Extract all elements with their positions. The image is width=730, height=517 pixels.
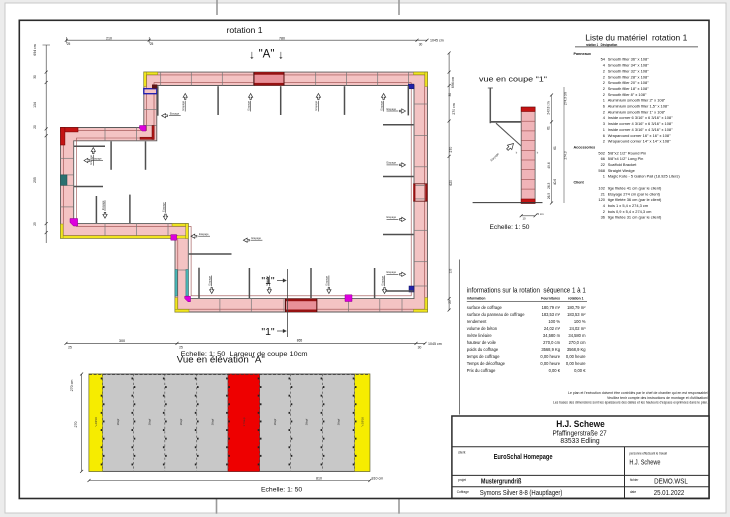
svg-text:date: date <box>630 490 636 494</box>
svg-text:DEMO.WSL: DEMO.WSL <box>654 478 688 485</box>
svg-text:Smooth filler 36" x 108": Smooth filler 36" x 108" <box>608 57 649 62</box>
svg-text:Smooth filler 8" x 108": Smooth filler 8" x 108" <box>608 92 647 97</box>
svg-text:Client: Client <box>574 181 585 185</box>
svg-text:270,0 cm: 270,0 cm <box>543 340 560 345</box>
svg-text:270,0 cm: 270,0 cm <box>569 340 586 345</box>
svg-text:temps de coffrage: temps de coffrage <box>467 354 500 359</box>
svg-text:Etayage: Etayage <box>101 200 105 210</box>
svg-text:1045 cm: 1045 cm <box>430 39 444 43</box>
svg-text:25: 25 <box>179 346 183 350</box>
svg-text:Etayage: Etayage <box>387 270 397 274</box>
svg-text:694 cm: 694 cm <box>451 77 455 88</box>
svg-text:810: 810 <box>316 476 322 480</box>
svg-text:270: 270 <box>74 422 78 428</box>
svg-text:informations sur la rotation: informations sur la rotation séquence 1 … <box>467 286 586 295</box>
svg-text:volume de béton: volume de béton <box>467 326 498 331</box>
svg-text:300: 300 <box>119 339 125 343</box>
svg-text:1: 1 <box>603 174 605 179</box>
svg-text:Echelle: 1: 50: Echelle: 1: 50 <box>490 224 530 231</box>
svg-text:rotation 1: rotation 1 <box>227 25 263 35</box>
svg-text:Etayage: Etayage <box>387 107 397 111</box>
svg-text:vue en coupe "1": vue en coupe "1" <box>479 75 547 84</box>
svg-text:25: 25 <box>67 42 71 46</box>
svg-text:Echelle: 1: 50: Echelle: 1: 50 <box>261 487 302 494</box>
svg-text:5/8"x2 1/2" Round Pin: 5/8"x2 1/2" Round Pin <box>608 150 646 155</box>
svg-text:36spf: 36spf <box>305 418 309 425</box>
svg-text:fichier: fichier <box>630 478 639 482</box>
svg-text:Etayage: Etayage <box>170 112 180 116</box>
svg-text:1: 1 <box>603 98 605 103</box>
svg-text:Scaffold Bracket: Scaffold Bracket <box>608 162 638 167</box>
svg-text:"1": "1" <box>261 275 275 287</box>
svg-text:Aluminium smooth filler 1,5" x: Aluminium smooth filler 1,5" x 108" <box>608 104 669 109</box>
svg-text:36spf: 36spf <box>211 418 215 425</box>
svg-text:20: 20 <box>33 125 37 129</box>
svg-text:26.3: 26.3 <box>547 182 551 188</box>
svg-text:1 "coup: 1 "coup <box>242 417 246 427</box>
svg-text:25: 25 <box>68 346 72 350</box>
svg-text:Temps de décoffrage: Temps de décoffrage <box>467 361 506 366</box>
svg-text:2: 2 <box>603 139 605 144</box>
svg-text:183,53 m²: 183,53 m² <box>542 312 561 317</box>
svg-text:0,00 heure: 0,00 heure <box>540 354 560 359</box>
svg-text:Etayage 274 cm (par le client): Etayage 274 cm (par le client) <box>608 191 661 196</box>
svg-text:hauteur de voile: hauteur de voile <box>467 340 497 345</box>
svg-text:bois 0,9 x 5,4 x 274,3 cm: bois 0,9 x 5,4 x 274,3 cm <box>608 209 652 214</box>
svg-text:270: 270 <box>449 147 453 153</box>
svg-text:rendement: rendement <box>467 319 487 324</box>
svg-text:26.5: 26.5 <box>547 193 551 199</box>
svg-text:125: 125 <box>449 268 453 273</box>
svg-text:Fournitures: Fournitures <box>541 297 560 301</box>
svg-text:Etayage: Etayage <box>92 156 102 160</box>
svg-text:2: 2 <box>603 92 605 97</box>
svg-text:personne effectuant le travail: personne effectuant le travail <box>629 452 667 456</box>
svg-text:Prix du coffrage: Prix du coffrage <box>467 368 496 373</box>
svg-text:274.3: 274.3 <box>564 151 568 159</box>
svg-text:30: 30 <box>33 75 37 79</box>
svg-text:183,53 m²: 183,53 m² <box>567 312 586 317</box>
svg-text:tige filetée 31 cm (par le cli: tige filetée 31 cm (par le client) <box>608 215 662 220</box>
svg-text:Wraparound corner 14" x 14" x: Wraparound corner 14" x 14" x 108" <box>608 139 671 144</box>
svg-text:2: 2 <box>603 209 605 214</box>
svg-text:Symons Silver 8-8 (Hauptlager): Symons Silver 8-8 (Hauptlager) <box>480 490 563 497</box>
svg-text:502: 502 <box>598 150 605 155</box>
svg-text:36spf: 36spf <box>179 418 183 425</box>
svg-text:Smooth filler 20" x 108": Smooth filler 20" x 108" <box>608 80 649 85</box>
svg-text:22: 22 <box>601 162 605 167</box>
svg-text:0,00 heure: 0,00 heure <box>540 361 560 366</box>
svg-text:255: 255 <box>33 177 37 183</box>
svg-text:120: 120 <box>598 197 605 202</box>
svg-text:40.6: 40.6 <box>553 179 557 185</box>
svg-text:"1": "1" <box>261 326 275 338</box>
svg-text:30: 30 <box>419 42 423 46</box>
svg-text:0,00 heure: 0,00 heure <box>566 354 586 359</box>
svg-text:100 %: 100 % <box>548 319 560 324</box>
svg-text:25 cm: 25 cm <box>536 212 544 216</box>
svg-text:83533 Edling: 83533 Edling <box>560 436 599 445</box>
svg-text:102: 102 <box>598 185 605 190</box>
svg-text:Désignation: Désignation <box>601 43 618 47</box>
svg-text:tige filetée 41 cm (par le cli: tige filetée 41 cm (par le client) <box>608 185 662 190</box>
svg-text:1: 1 <box>603 127 605 132</box>
svg-text:Smooth filler 18" x 108": Smooth filler 18" x 108" <box>608 86 649 91</box>
svg-text:surface de coffrage: surface de coffrage <box>467 305 503 310</box>
svg-text:Etayage: Etayage <box>161 202 165 212</box>
svg-text:Les bases des dimensions sont: Les bases des dimensions sont les épaiss… <box>553 400 708 405</box>
svg-text:243.8 cm: 243.8 cm <box>547 101 551 114</box>
svg-text:"A": "A" <box>259 49 275 61</box>
svg-text:34,580 m: 34,580 m <box>568 333 586 338</box>
svg-text:↓: ↓ <box>278 48 284 62</box>
svg-text:Inside corner 6 3/16" x 6 3/16: Inside corner 6 3/16" x 6 3/16" x 108" <box>608 115 673 120</box>
svg-text:↓: ↓ <box>249 48 255 62</box>
svg-text:10: 10 <box>522 217 526 221</box>
svg-text:61: 61 <box>553 146 557 150</box>
svg-text:25: 25 <box>150 42 154 46</box>
svg-text:620: 620 <box>449 180 453 186</box>
svg-text:Mustergrundriß: Mustergrundriß <box>481 478 522 485</box>
svg-text:1045 cm: 1045 cm <box>428 342 442 346</box>
svg-text:Etayage: Etayage <box>246 100 250 110</box>
svg-text:Etayage: Etayage <box>208 275 212 285</box>
svg-text:Etayage: Etayage <box>199 232 209 236</box>
svg-text:Coffrage: Coffrage <box>457 490 469 494</box>
svg-text:Smooth filler 28" x 108": Smooth filler 28" x 108" <box>608 74 649 79</box>
svg-text:568: 568 <box>598 168 605 173</box>
svg-text:270 cm: 270 cm <box>452 103 456 114</box>
svg-text:36spf: 36spf <box>273 418 277 425</box>
svg-text:61: 61 <box>547 126 551 130</box>
svg-text:Accessoires: Accessoires <box>574 145 596 149</box>
svg-text:0,00 €: 0,00 € <box>574 368 586 373</box>
svg-text:865: 865 <box>297 339 303 343</box>
svg-text:0,00 €: 0,00 € <box>549 368 561 373</box>
svg-text:Etayage: Etayage <box>379 100 383 110</box>
svg-text:694 cm: 694 cm <box>33 44 37 55</box>
svg-text:Inside corner 4 3/16" x 4 3/16: Inside corner 4 3/16" x 4 3/16" x 108" <box>608 127 673 132</box>
svg-text:Etayage: Etayage <box>387 161 397 165</box>
svg-text:180,79 m²: 180,79 m² <box>542 305 561 310</box>
svg-text:24,02 m³: 24,02 m³ <box>544 326 561 331</box>
svg-text:Aluminium smooth filler 1" x 1: Aluminium smooth filler 1" x 108" <box>608 109 666 114</box>
svg-text:rotation 1: rotation 1 <box>586 43 598 47</box>
svg-text:36spf: 36spf <box>116 418 120 425</box>
svg-text:rotation 1: rotation 1 <box>568 297 584 301</box>
svg-text:25: 25 <box>448 300 452 304</box>
svg-text:information: information <box>467 297 486 301</box>
svg-text:3568,9 Kg: 3568,9 Kg <box>541 347 560 352</box>
svg-text:36spf: 36spf <box>147 418 151 425</box>
svg-text:Etayage: Etayage <box>325 275 329 285</box>
svg-text:180,79 m²: 180,79 m² <box>567 305 586 310</box>
svg-text:810 cm: 810 cm <box>372 476 384 480</box>
svg-text:EuroSchal Homepage: EuroSchal Homepage <box>494 454 553 461</box>
svg-text:210: 210 <box>106 36 112 40</box>
svg-text:Smooth filler 32" x 108": Smooth filler 32" x 108" <box>608 68 649 73</box>
svg-text:3568,9 Kg: 3568,9 Kg <box>567 347 586 352</box>
svg-text:Etayage: Etayage <box>314 100 318 110</box>
svg-text:25.01.2022: 25.01.2022 <box>654 490 685 497</box>
svg-text:25: 25 <box>33 222 37 226</box>
svg-text:2: 2 <box>603 68 605 73</box>
svg-text:274.3 cm: 274.3 cm <box>564 92 568 105</box>
svg-text:30: 30 <box>418 346 422 350</box>
svg-text:Etayage: Etayage <box>181 100 185 110</box>
svg-text:Smooth filler 34" x 108": Smooth filler 34" x 108" <box>608 63 649 68</box>
svg-text:2: 2 <box>603 109 605 114</box>
svg-text:"+2/9'16: "+2/9'16 <box>360 417 364 427</box>
svg-text:tige filetée 36 cm (par le cli: tige filetée 36 cm (par le client) <box>608 197 662 202</box>
svg-text:poids du coffrage: poids du coffrage <box>467 347 499 352</box>
svg-text:Inside corner 4 3/16" x 6 3/16: Inside corner 4 3/16" x 6 3/16" x 108" <box>608 121 673 126</box>
svg-text:"+2/9'16: "+2/9'16 <box>94 417 98 427</box>
svg-text:Aluminium smooth filler 2" x 1: Aluminium smooth filler 2" x 108" <box>608 98 666 103</box>
svg-text:Panneaux: Panneaux <box>574 52 592 56</box>
svg-text:projet: projet <box>458 478 466 482</box>
svg-text:mètre linéaire: mètre linéaire <box>467 333 493 338</box>
svg-text:270 cm: 270 cm <box>70 380 74 392</box>
svg-text:0,00 heure: 0,00 heure <box>566 361 586 366</box>
svg-text:2: 2 <box>603 74 605 79</box>
svg-text:client: client <box>458 451 466 455</box>
svg-text:780: 780 <box>279 36 285 40</box>
svg-text:5/8"x4 1/2" Long Pin: 5/8"x4 1/2" Long Pin <box>608 156 644 161</box>
svg-text:49.6: 49.6 <box>547 162 551 168</box>
svg-text:Etayage: Etayage <box>251 236 261 240</box>
svg-text:2: 2 <box>603 80 605 85</box>
svg-text:Liste du matériel rotation 1: Liste du matériel rotation 1 <box>585 32 687 42</box>
svg-text:21: 21 <box>601 191 605 196</box>
svg-text:H.J. Schewe: H.J. Schewe <box>556 418 605 429</box>
svg-text:100 %: 100 % <box>574 319 586 324</box>
svg-text:surface du panneau de coffrage: surface du panneau de coffrage <box>467 312 525 317</box>
svg-text:2: 2 <box>603 86 605 91</box>
svg-text:34,580 m: 34,580 m <box>543 333 561 338</box>
svg-text:Etayage: Etayage <box>387 215 397 219</box>
svg-text:Vue en élévation "A": Vue en élévation "A" <box>177 355 265 365</box>
svg-text:24,02 m³: 24,02 m³ <box>569 326 586 331</box>
svg-text:36spf: 36spf <box>337 418 341 425</box>
svg-text:Etayage: Etayage <box>380 275 384 285</box>
svg-text:Wraparound corner 16" x 16" x: Wraparound corner 16" x 16" x 108" <box>608 133 671 138</box>
svg-text:30: 30 <box>448 93 452 97</box>
svg-text:bois 1 x 5,4 x 274,3 cm: bois 1 x 5,4 x 274,3 cm <box>608 203 649 208</box>
svg-text:Straight Wedge: Straight Wedge <box>608 168 636 173</box>
svg-text:Magic Kote - 5 Gallon Pail (18: Magic Kote - 5 Gallon Pail (18.925 Liter… <box>608 174 681 179</box>
svg-text:H.J. Schewe: H.J. Schewe <box>629 459 660 466</box>
svg-text:134: 134 <box>33 102 37 108</box>
